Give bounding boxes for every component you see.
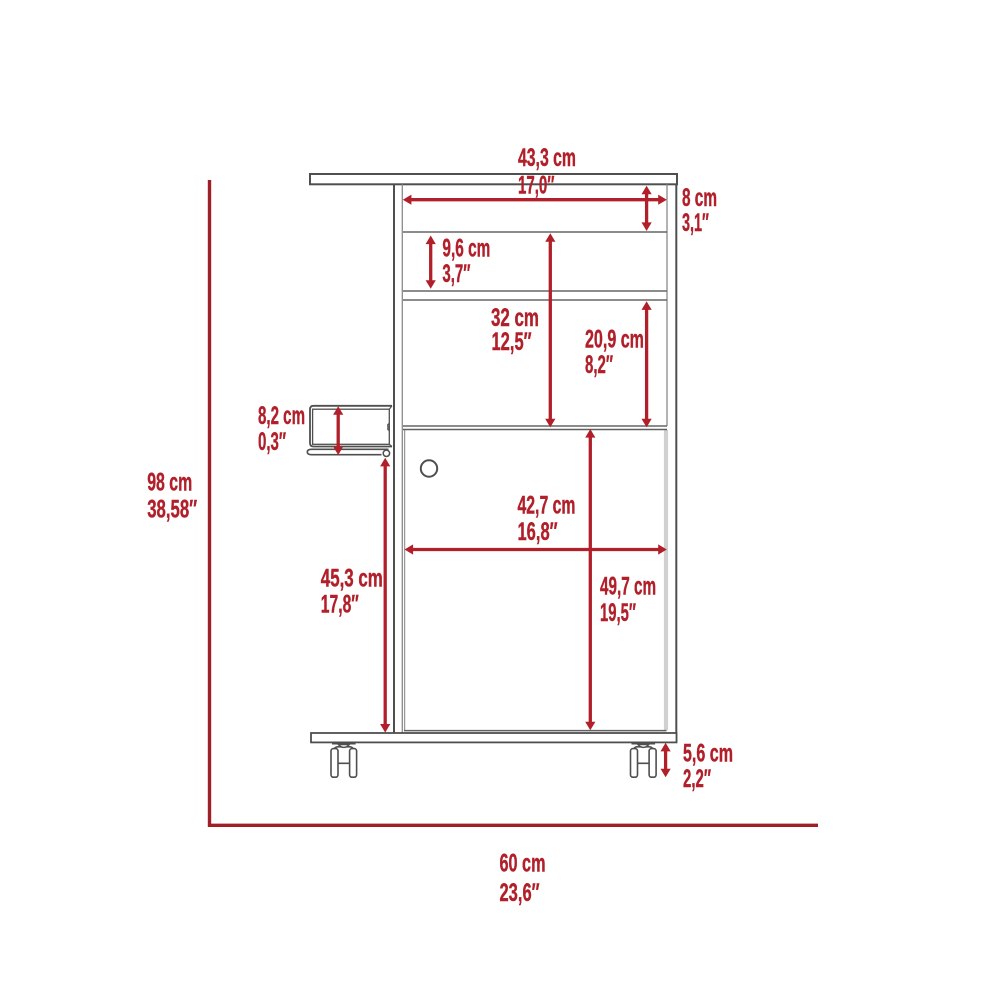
svg-text:49,7 cm: 49,7 cm [600, 573, 656, 601]
svg-text:8 cm: 8 cm [682, 184, 717, 212]
svg-text:42,7 cm: 42,7 cm [518, 492, 576, 520]
svg-text:45,3 cm: 45,3 cm [321, 564, 383, 592]
svg-text:0,3″: 0,3″ [258, 428, 286, 456]
svg-text:8,2 cm: 8,2 cm [258, 402, 305, 430]
svg-text:43,3 cm: 43,3 cm [518, 144, 576, 172]
svg-text:17,0″: 17,0″ [518, 172, 555, 200]
svg-text:60 cm: 60 cm [500, 850, 546, 877]
svg-text:98 cm: 98 cm [147, 469, 192, 497]
svg-text:12,5″: 12,5″ [492, 328, 532, 356]
svg-text:17,8″: 17,8″ [321, 591, 359, 619]
svg-text:3,7″: 3,7″ [442, 260, 470, 288]
svg-text:19,5″: 19,5″ [600, 599, 636, 627]
svg-text:9,6 cm: 9,6 cm [442, 235, 490, 263]
svg-text:3,1″: 3,1″ [682, 209, 709, 237]
svg-text:5,6 cm: 5,6 cm [683, 740, 733, 767]
svg-text:23,6″: 23,6″ [500, 879, 540, 907]
svg-text:20,9 cm: 20,9 cm [585, 326, 644, 353]
svg-text:8,2″: 8,2″ [585, 351, 613, 379]
svg-text:2,2″: 2,2″ [683, 765, 711, 793]
svg-text:38,58″: 38,58″ [147, 495, 197, 523]
svg-text:16,8″: 16,8″ [518, 518, 558, 546]
